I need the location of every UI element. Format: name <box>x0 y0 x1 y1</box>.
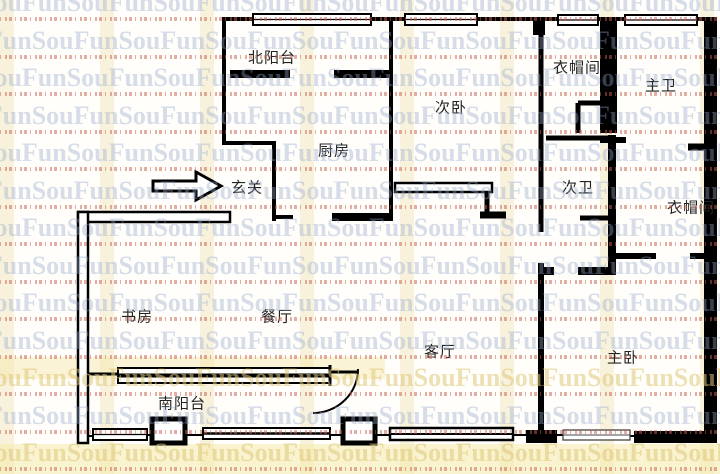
room-label-living: 客厅 <box>424 341 456 362</box>
room-label-study: 书房 <box>121 306 153 327</box>
floor-plan: 北阳台次卧衣帽间主卫厨房玄关次卫衣帽间书房餐厅客厅主卧南阳台 SouFunSou… <box>0 0 720 474</box>
room-label-entry: 玄关 <box>231 177 263 198</box>
room-label-north-balcony: 北阳台 <box>248 47 296 68</box>
room-label-master-bath: 主卫 <box>645 75 677 96</box>
room-label-second-bath: 次卫 <box>562 177 594 198</box>
room-label-dining: 餐厅 <box>261 306 293 327</box>
room-label-south-balcony: 南阳台 <box>158 393 206 414</box>
room-label-cloakroom-top: 衣帽间 <box>553 57 601 78</box>
room-label-second-bedroom: 次卧 <box>435 97 467 118</box>
room-labels: 北阳台次卧衣帽间主卫厨房玄关次卫衣帽间书房餐厅客厅主卧南阳台 <box>0 0 720 474</box>
room-label-cloakroom-right: 衣帽间 <box>667 197 715 218</box>
room-label-master-bedroom: 主卧 <box>607 347 639 368</box>
room-label-kitchen: 厨房 <box>318 140 350 161</box>
